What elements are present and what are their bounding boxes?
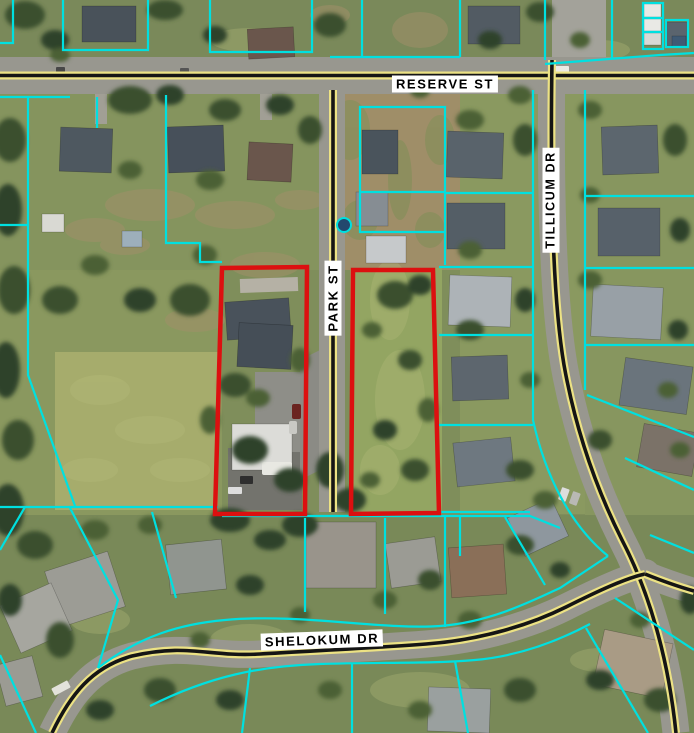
map-image — [0, 0, 694, 733]
street-label-reserve-st: RESERVE ST — [392, 76, 498, 93]
street-label-tillicum-dr: TILLICUM DR — [543, 147, 560, 252]
aerial-parcel-map: RESERVE ST PARK ST TILLICUM DR SHELOKUM … — [0, 0, 694, 733]
street-label-park-st: PARK ST — [325, 260, 342, 335]
pool-marker — [337, 218, 351, 232]
